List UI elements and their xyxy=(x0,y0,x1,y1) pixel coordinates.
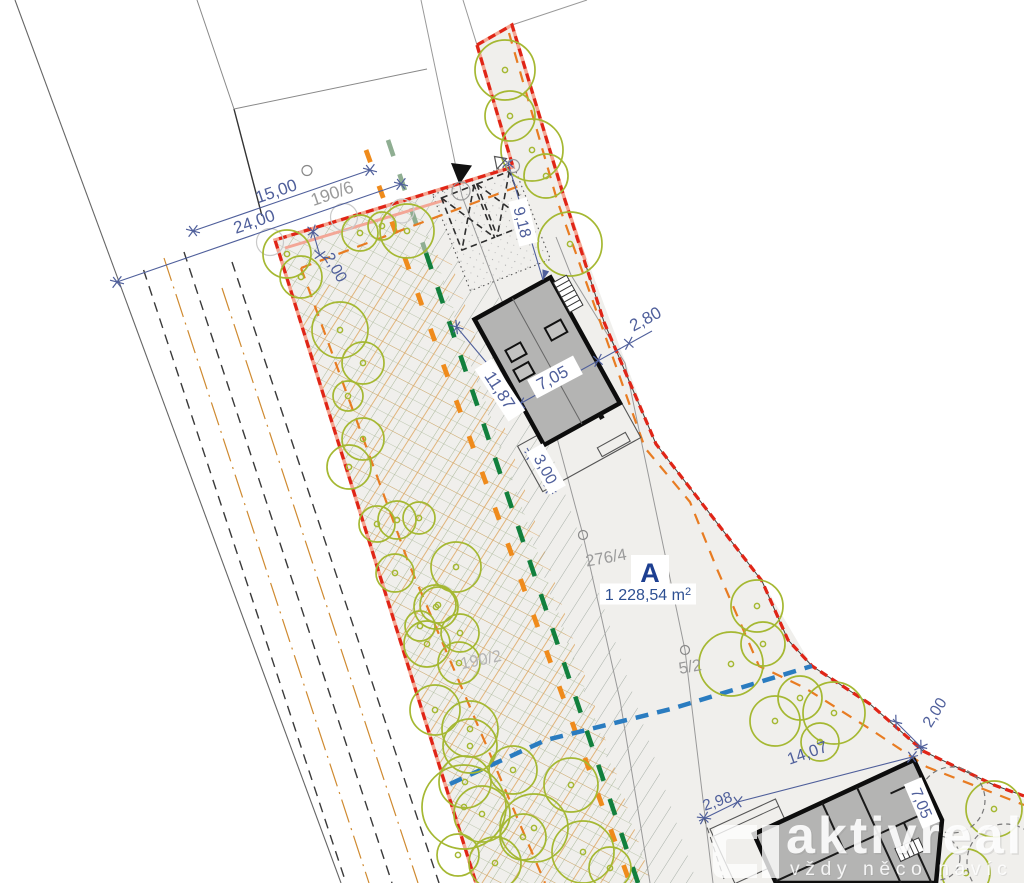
svg-text:aktivreal: aktivreal xyxy=(786,807,1024,865)
svg-text:vždy něco navíc: vždy něco navíc xyxy=(790,858,1012,880)
svg-text:1 228,54 m2: 1 228,54 m2 xyxy=(605,586,691,604)
